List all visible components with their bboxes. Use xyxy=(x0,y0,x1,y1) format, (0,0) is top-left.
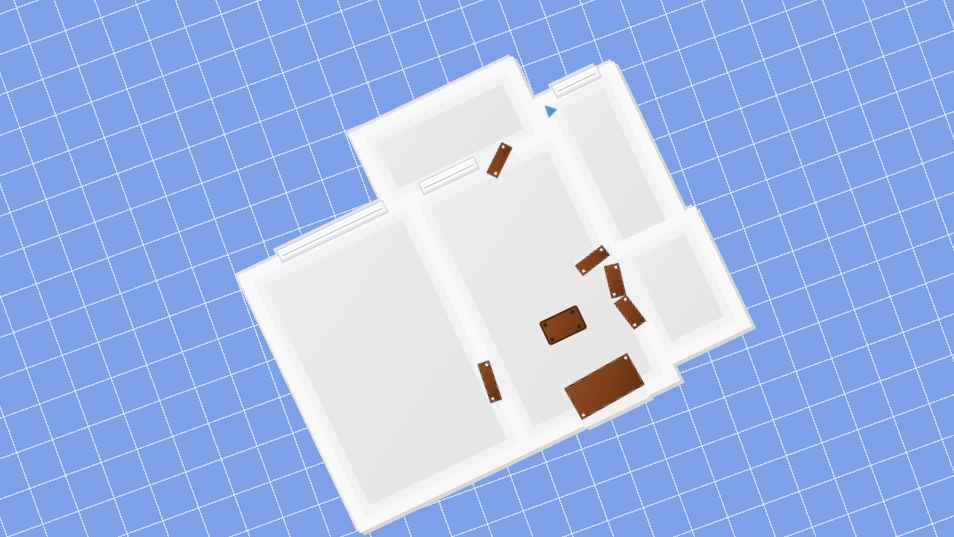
scene-canvas[interactable] xyxy=(0,0,954,537)
